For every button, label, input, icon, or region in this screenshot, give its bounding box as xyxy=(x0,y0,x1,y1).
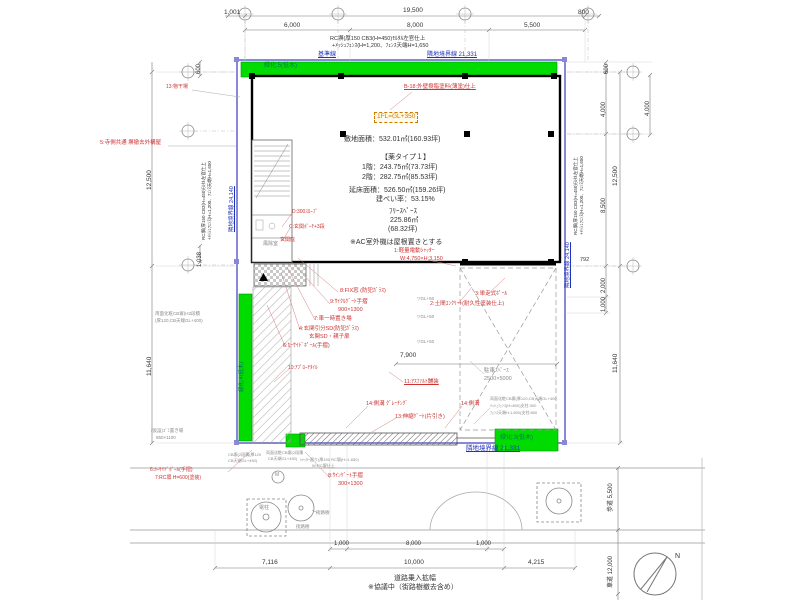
approach-hatch xyxy=(253,287,291,443)
green-area-left xyxy=(239,294,252,441)
green-area-top xyxy=(241,62,557,77)
entrance-porch xyxy=(254,264,318,286)
utilities xyxy=(247,471,581,536)
site-plan-drawing xyxy=(0,0,800,600)
north-arrow xyxy=(634,553,676,595)
meter-circle xyxy=(272,471,284,483)
site-plan-page: 1,00119,5008006,0008,0005,500RC塀(厚150 CB… xyxy=(0,0,800,600)
green-area-bottom-right xyxy=(495,429,558,451)
building-outline xyxy=(252,76,560,262)
driveway-dashed xyxy=(460,268,556,430)
expanding-gate xyxy=(300,433,457,445)
stair-block xyxy=(252,140,292,262)
